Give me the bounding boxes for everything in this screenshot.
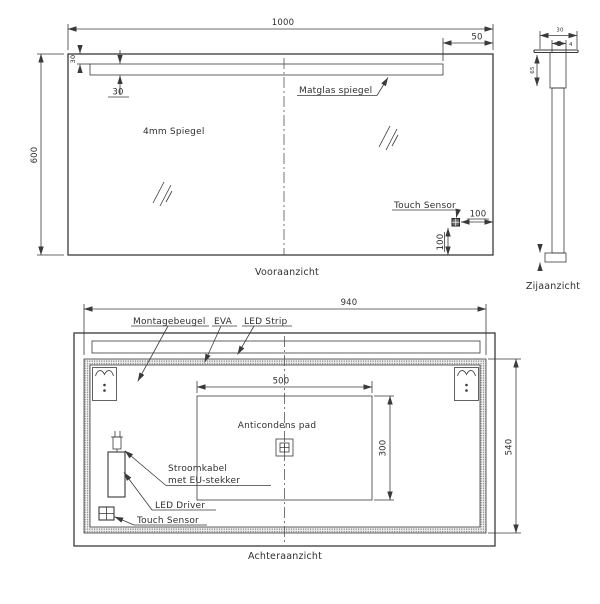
mounting-bracket-left-icon [93,368,117,401]
front-dim-width-text: 1000 [272,18,294,28]
front-touch-sensor-icon [452,219,460,227]
front-dim-100h-text: 100 [470,210,487,220]
back-dim-300-text: 300 [379,440,389,457]
montagebeugel-label: Montagebeugel [133,317,206,327]
front-dim-100v-text: 100 [436,234,446,251]
back-touch-sensor-icon [99,507,114,520]
front-dim-50-text: 50 [471,33,482,43]
eva-label-group: EVA [205,317,238,363]
led-strip-label-group: LED Strip [238,317,292,354]
side-dim-depth-text: 30 [556,28,564,34]
side-view-caption: Zijaanzicht [526,281,580,292]
back-touch-sensor-label-group: Touch Sensor [115,516,207,526]
power-plug-icon [111,431,123,452]
front-dim-sensor-bottom: 100 [436,228,448,255]
side-bottom-profile [545,253,566,262]
front-dim-strip-right-offset: 50 [443,33,493,62]
anticondens-pad-label: Anticondens pad [238,421,317,431]
front-matglas-label-group: Matglas spiegel [297,78,388,97]
side-dim-top-section: 65 [530,55,537,86]
led-driver-label: LED Driver [155,501,205,511]
front-dim-sensor-right: 100 [461,210,493,223]
stroomkabel-label-group: Stroomkabel met EU-stekker [125,451,271,486]
back-dim-height: 540 [488,359,521,533]
front-dim-width: 1000 [68,18,493,50]
stroomkabel-label-line1: Stroomkabel [168,464,227,474]
glass-mark-icon [379,126,398,150]
side-dim-glass-text: 4 [569,42,573,48]
glass-label: 4mm Spiegel [143,127,205,137]
side-glass-strip [552,88,564,253]
back-view-caption: Achteraanzicht [248,551,322,562]
matglas-label: Matglas spiegel [299,86,372,96]
front-dim-height: 600 [30,54,64,255]
front-matglas-strip [90,64,443,75]
front-mirror-outline [68,54,493,255]
side-frame-profile [550,53,566,89]
back-dim-pad-height: 300 [374,396,394,500]
back-dim-500-text: 500 [273,377,290,387]
side-dim-top-text: 65 [530,66,536,74]
front-touch-sensor-label-group: Touch Sensor [392,201,458,218]
side-view: 30 4 65 30 Zijaanzicht [526,28,600,601]
mirror-technical-drawing: 1000 50 600 30 30 Ma [0,0,600,600]
back-view: 940 Montagebeugel EVA LED Strip Anticond… [74,298,521,562]
front-dim-strip-top-gap: 30 [69,45,90,73]
front-dim-strip-height-text: 30 [112,88,123,98]
front-dim-strip-height: 30 [108,50,129,98]
montagebeugel-label-group: Montagebeugel [131,317,209,381]
back-dim-940-text: 940 [341,298,358,308]
front-dim-600-text: 600 [30,147,40,164]
front-touch-sensor-label: Touch Sensor [393,201,456,211]
led-strip-label: LED Strip [244,317,288,327]
front-view: 1000 50 600 30 30 Ma [30,18,493,278]
stroomkabel-label-line2: met EU-stekker [168,476,240,486]
eva-label: EVA [214,317,233,327]
back-dim-540-text: 540 [505,439,515,456]
back-led-strip [92,341,480,353]
back-touch-sensor-label: Touch Sensor [136,516,199,526]
front-dim-gap-text: 30 [69,55,77,64]
side-dim-bottom-section: 30 [540,247,600,601]
mounting-bracket-right-icon [455,368,479,401]
glass-mark-icon [153,182,172,206]
led-driver-icon [108,452,125,497]
front-view-caption: Vooraanzicht [255,267,319,278]
back-dim-pad-width: 500 [197,377,372,394]
